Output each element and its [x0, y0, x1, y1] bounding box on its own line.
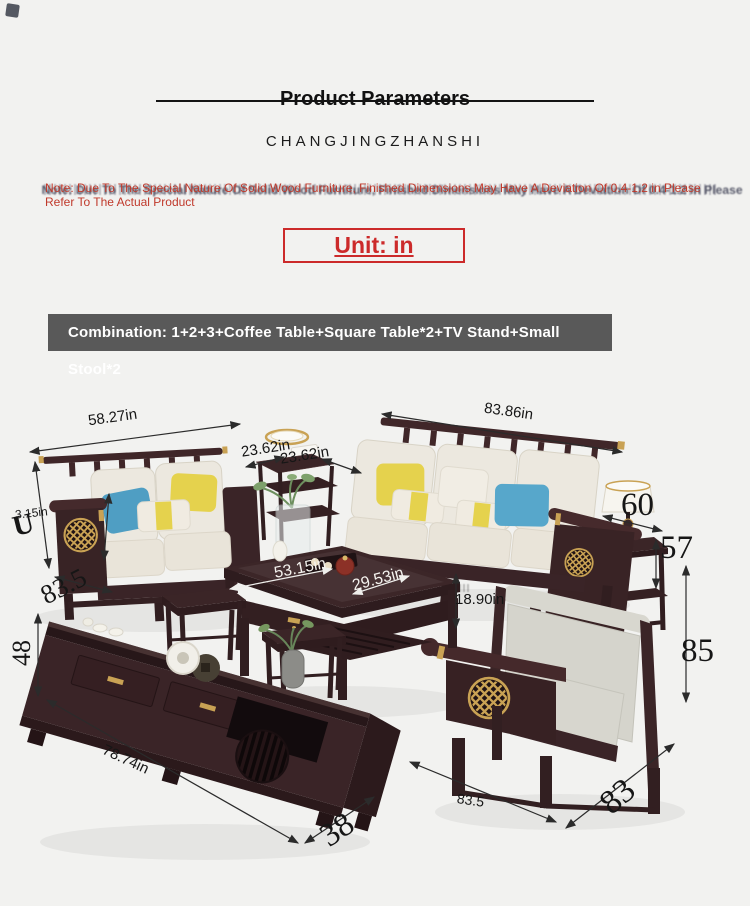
dim-label-tv-height: 48	[7, 631, 37, 675]
dim-label-lamp-table: 60	[621, 487, 654, 524]
dim-label-armchair-height: 85	[681, 633, 714, 670]
dim-label-side-height: 57	[660, 530, 693, 567]
product-parameters-page: Product Parameters CHANGJINGZHANSHI Note…	[0, 0, 750, 906]
furniture-illustration	[0, 0, 750, 906]
dim-label-coffee-height: 18.90in	[455, 591, 504, 608]
